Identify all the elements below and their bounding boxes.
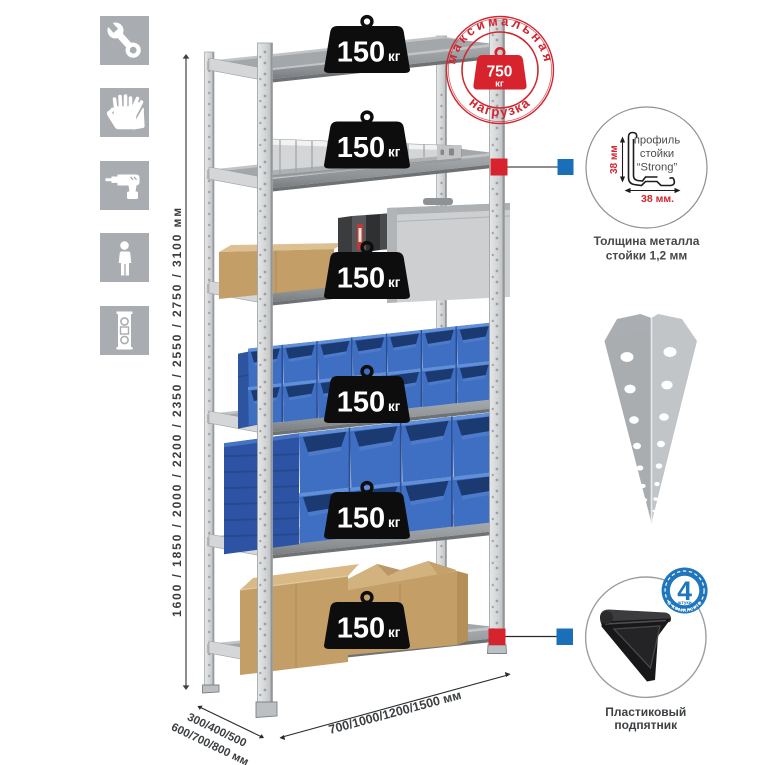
svg-text:Толщина металла: Толщина металла [594,234,700,248]
svg-text:стойки: стойки [640,148,674,160]
svg-text:150: 150 [337,387,385,419]
svg-text:кг: кг [388,145,401,160]
svg-text:38 мм.: 38 мм. [641,193,674,205]
svg-text:кг: кг [388,399,401,414]
svg-text:150: 150 [337,37,385,69]
svg-text:профиль: профиль [634,135,680,147]
svg-text:700/1000/1200/1500 мм: 700/1000/1200/1500 мм [327,688,463,737]
svg-text:150: 150 [337,503,385,535]
svg-text:кг: кг [388,275,401,290]
svg-text:Пластиковый: Пластиковый [605,705,686,719]
svg-text:штуки: штуки [678,600,692,605]
svg-text:кг: кг [388,515,401,530]
svg-text:кг: кг [388,49,401,64]
svg-text:кг: кг [495,79,504,90]
svg-text:150: 150 [337,613,385,645]
svg-text:кг: кг [388,625,401,640]
svg-text:“Strong”: “Strong” [637,162,678,174]
svg-text:38 мм: 38 мм [609,145,620,174]
svg-text:1600 / 1850 / 2000 / 2200 / 23: 1600 / 1850 / 2000 / 2200 / 2350 / 2550 … [170,206,184,617]
svg-text:150: 150 [337,132,385,164]
svg-text:150: 150 [337,263,385,295]
svg-text:подпятник: подпятник [614,718,678,732]
svg-text:стойки 1,2 мм: стойки 1,2 мм [606,249,688,263]
